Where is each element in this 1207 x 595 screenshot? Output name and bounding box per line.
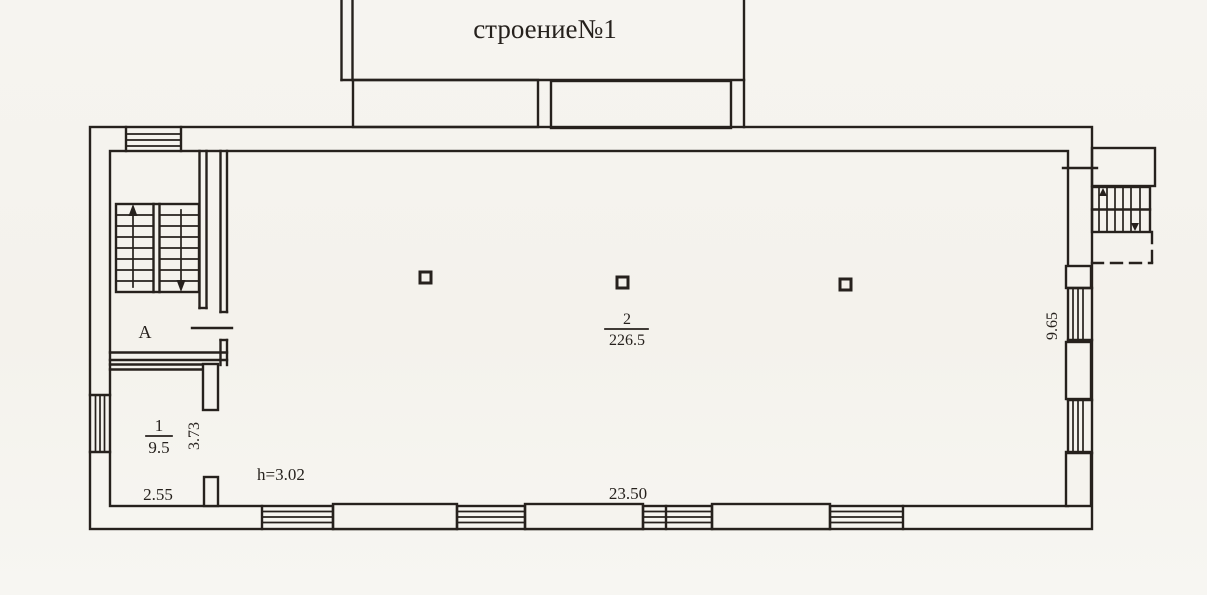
south-wall-piers <box>333 504 830 529</box>
porch-right <box>551 81 731 128</box>
room1-north-wall <box>110 365 203 370</box>
dim-room1-width: 2.55 <box>143 485 173 504</box>
dim-room1-depth: 3.73 <box>186 422 203 450</box>
outer-wall <box>90 127 1092 529</box>
stair-up-arrow-icon <box>129 204 138 287</box>
dim-east-wall-length: 9.65 <box>1044 312 1061 340</box>
stair-treads <box>116 215 199 281</box>
exterior-up-arrow-icon <box>1099 188 1107 196</box>
room1-east-wall-stub <box>204 477 218 506</box>
stairwell-east-wall <box>200 151 207 308</box>
hall-area: 226.5 <box>609 332 645 349</box>
entrance-steps <box>126 127 181 151</box>
exterior-stairs <box>1092 148 1155 263</box>
exterior-down-arrow-icon <box>1131 223 1139 231</box>
porch-left <box>353 80 538 127</box>
columns <box>420 272 851 290</box>
exterior-landing <box>1092 148 1155 186</box>
inner-wall <box>110 151 1068 506</box>
dim-south-wall-length: 23.50 <box>609 484 647 503</box>
room1-number: 1 <box>155 416 164 435</box>
column <box>420 272 431 283</box>
stairwell-south-wall <box>110 353 227 361</box>
window-west <box>90 395 110 452</box>
room1-area: 9.5 <box>148 438 169 457</box>
hall-number-fraction: 2 226.5 <box>605 311 648 349</box>
room1-number-fraction: 1 9.5 <box>146 416 172 457</box>
exterior-lower-landing-dashed <box>1092 232 1152 263</box>
room1-east-wall <box>203 364 218 410</box>
floor-plan-scan: строение№1 <box>0 0 1207 595</box>
dim-ceiling-height: h=3.02 <box>257 465 305 484</box>
building-1-label: строение№1 <box>473 14 617 44</box>
stair-down-arrow-icon <box>177 210 186 292</box>
column <box>840 279 851 290</box>
hall-number: 2 <box>623 311 631 328</box>
stairwell-label: A <box>139 322 152 342</box>
floor-plan-drawing: строение№1 <box>0 0 1207 595</box>
column <box>617 277 628 288</box>
